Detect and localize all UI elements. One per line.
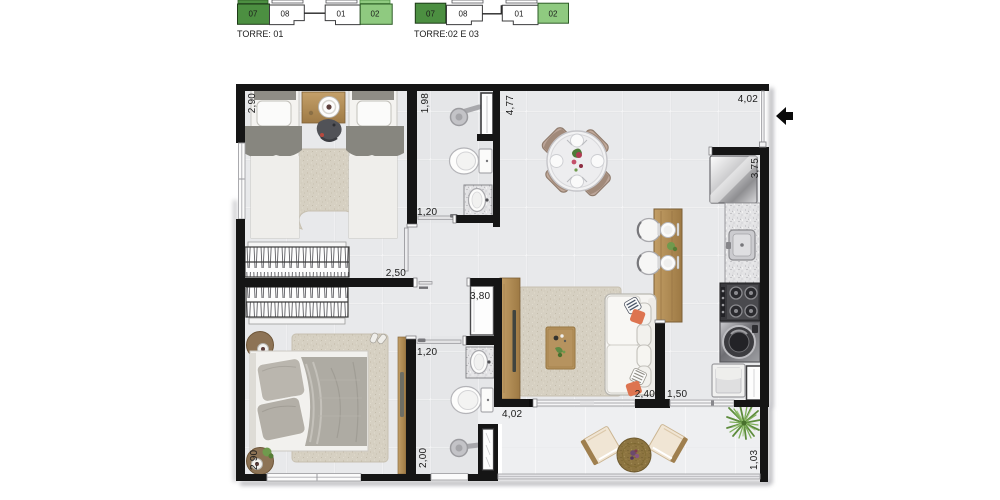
svg-text:1,20: 1,20 [417, 207, 438, 218]
svg-text:4,02: 4,02 [738, 94, 759, 105]
svg-text:1,50: 1,50 [667, 389, 688, 400]
svg-text:2,50: 2,50 [386, 268, 407, 279]
svg-text:2,00: 2,00 [418, 447, 429, 468]
svg-text:2,40: 2,40 [635, 389, 656, 400]
svg-text:07: 07 [426, 10, 435, 19]
svg-text:01: 01 [337, 10, 346, 19]
svg-text:3,75: 3,75 [750, 158, 761, 179]
svg-text:2,90: 2,90 [249, 449, 260, 470]
svg-text:3,80: 3,80 [470, 291, 491, 302]
svg-text:TORRE: 01: TORRE: 01 [237, 29, 283, 39]
svg-text:4,02: 4,02 [502, 409, 523, 420]
svg-text:02: 02 [549, 10, 558, 19]
svg-text:1,98: 1,98 [420, 93, 431, 114]
svg-text:08: 08 [281, 10, 290, 19]
svg-text:07: 07 [249, 10, 258, 19]
svg-text:4,77: 4,77 [505, 95, 516, 116]
svg-text:1,03: 1,03 [749, 449, 760, 470]
svg-text:02: 02 [371, 10, 380, 19]
svg-text:08: 08 [459, 10, 468, 19]
svg-text:2,90: 2,90 [247, 93, 258, 114]
svg-text:TORRE:02 E 03: TORRE:02 E 03 [414, 29, 479, 39]
svg-text:1,20: 1,20 [417, 347, 438, 358]
svg-text:01: 01 [515, 10, 524, 19]
